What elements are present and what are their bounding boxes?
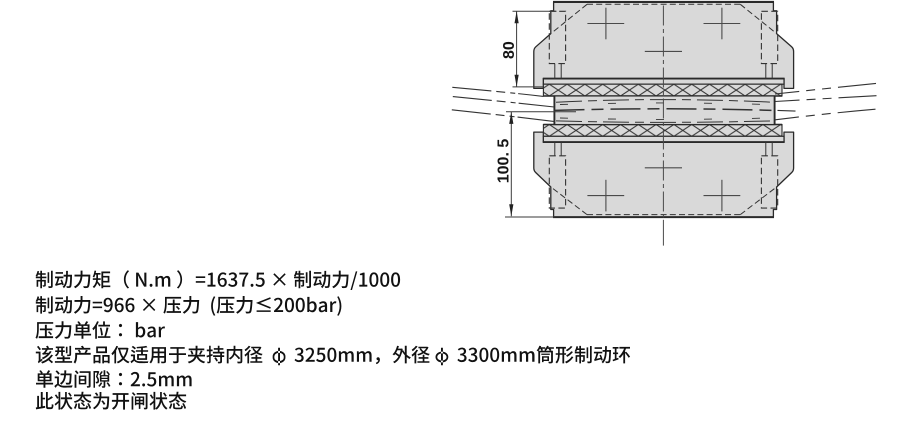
- svg-text:80: 80: [501, 41, 518, 59]
- svg-text:100. 5: 100. 5: [496, 139, 513, 184]
